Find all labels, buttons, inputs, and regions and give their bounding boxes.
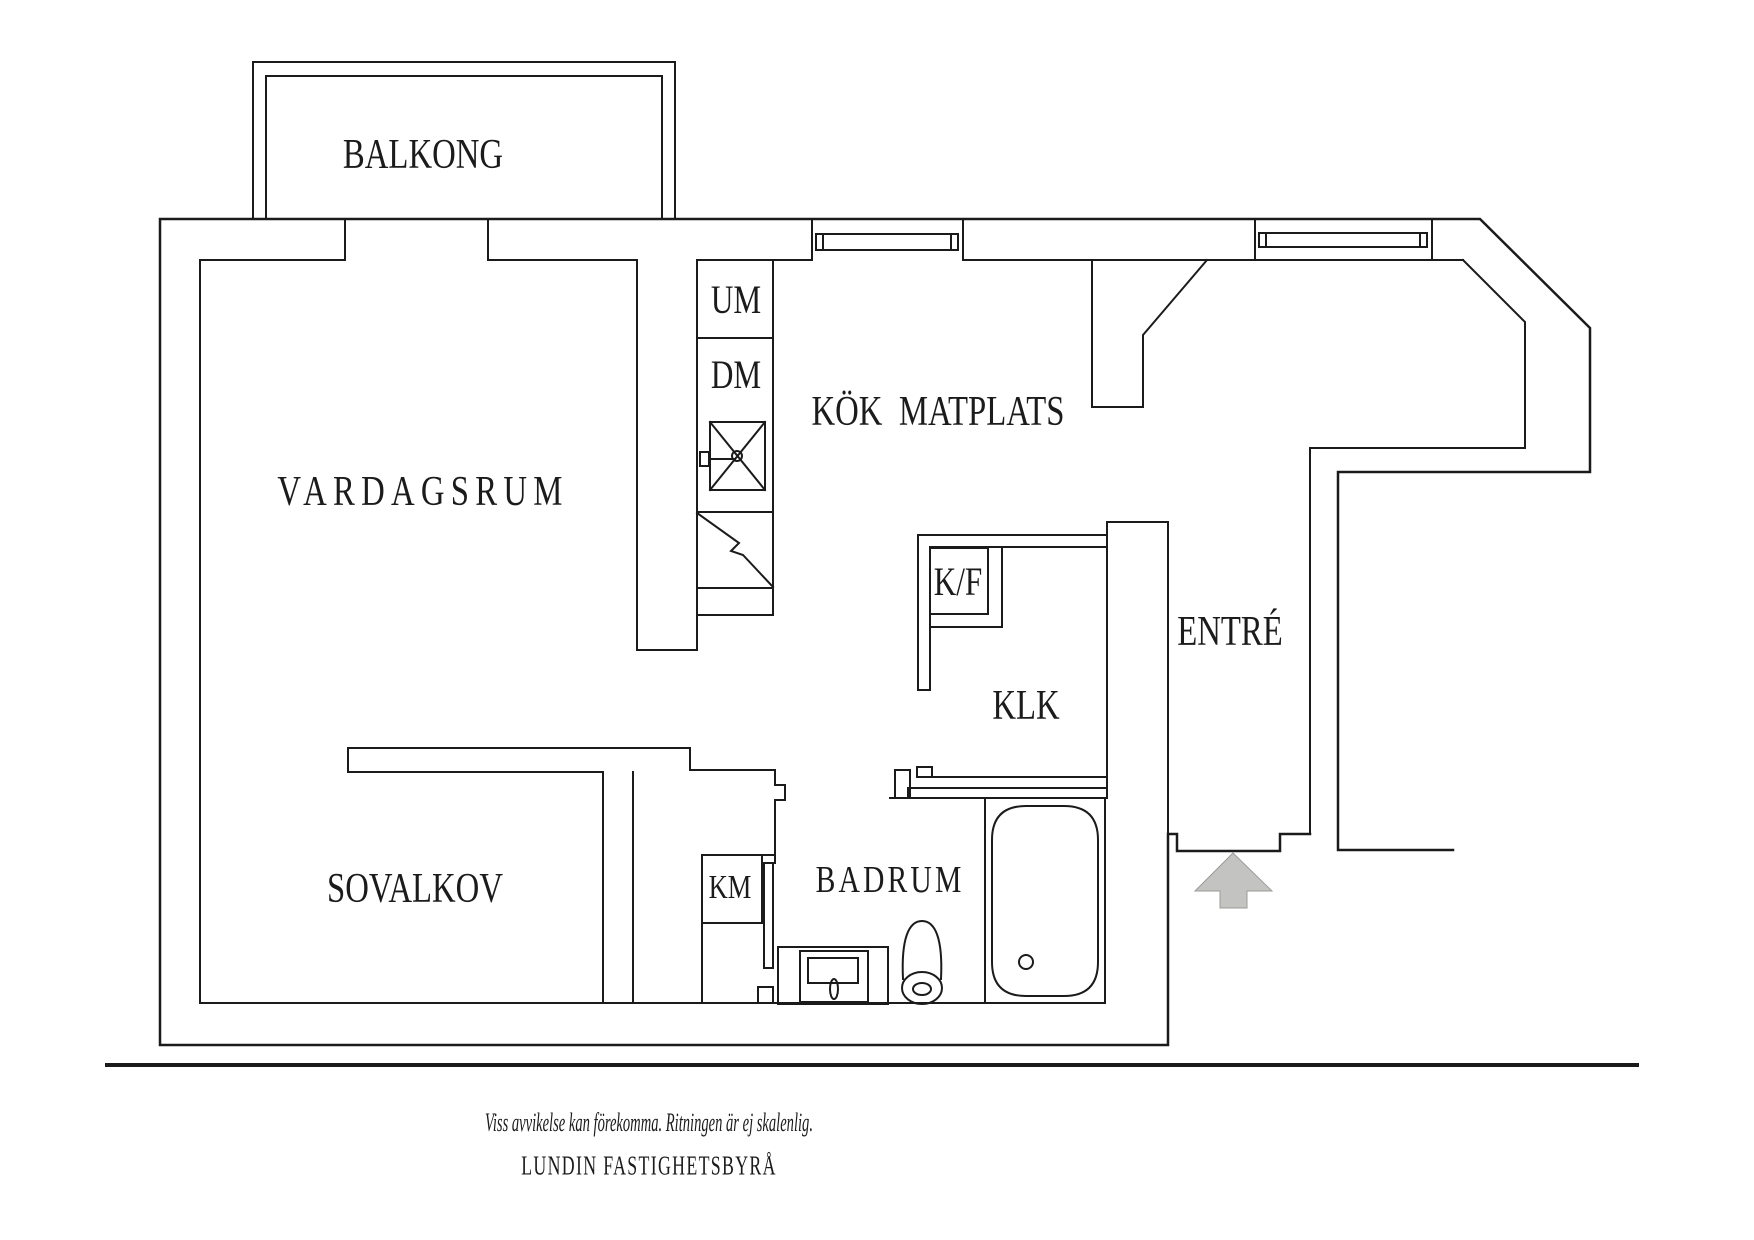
plan-linework: [107, 62, 1637, 1065]
appliance-label-dm: DM: [711, 355, 761, 395]
appliance-label-kf: K/F: [934, 562, 983, 602]
window-1: [812, 219, 963, 260]
bathtub-box: [985, 798, 1105, 1003]
room-label-balkong: BALKONG: [343, 134, 503, 176]
room-label-vardagsrum: VARDAGSRUM: [277, 471, 568, 513]
window-2: [1255, 219, 1432, 260]
toilet-icon: [902, 921, 942, 1004]
klk-bottom-wall: [908, 767, 1107, 798]
room-label-kok-matplats: KÖK MATPLATS: [811, 391, 1064, 433]
entry-inner-walls: [1310, 260, 1525, 834]
washbasin-icon: [778, 947, 888, 1004]
footer-disclaimer: Viss avvikelse kan förekomma. Ritningen …: [485, 1110, 813, 1136]
stove-icon: [697, 513, 773, 587]
window-1-frame: [812, 219, 963, 260]
appliance-label-um: UM: [711, 280, 761, 320]
toilet-lid: [913, 983, 931, 995]
window-2-frame: [1255, 219, 1432, 260]
entrance-arrow-icon: [1195, 853, 1272, 908]
bathtub-icon: [985, 798, 1105, 1003]
floor-plan: BALKONG VARDAGSRUM KÖK MATPLATS ENTRÉ KL…: [0, 0, 1754, 1240]
matplats-entry-wall: [1092, 260, 1207, 407]
bathtub-tub: [992, 806, 1098, 996]
room-label-badrum: BADRUM: [816, 861, 965, 899]
room-label-klk: KLK: [992, 685, 1059, 727]
klk-entry-wall: [1107, 522, 1168, 834]
washbasin-outline: [778, 947, 888, 1004]
exterior-walls: [160, 219, 1590, 1045]
bathroom-top-wall: [890, 770, 1107, 798]
bathtub-drain: [1019, 955, 1033, 969]
livingroom-kitchen-wall: [637, 260, 697, 650]
footer-brand: LUNDIN FASTIGHETSBYRÅ: [521, 1153, 777, 1180]
toilet-bowl: [903, 921, 942, 979]
appliance-label-km: KM: [709, 871, 752, 905]
toilet-tank: [902, 972, 942, 1004]
room-label-entre: ENTRÉ: [1177, 611, 1283, 653]
room-label-sovalkov: SOVALKOV: [327, 868, 503, 910]
floor-plan-svg: [0, 0, 1754, 1240]
